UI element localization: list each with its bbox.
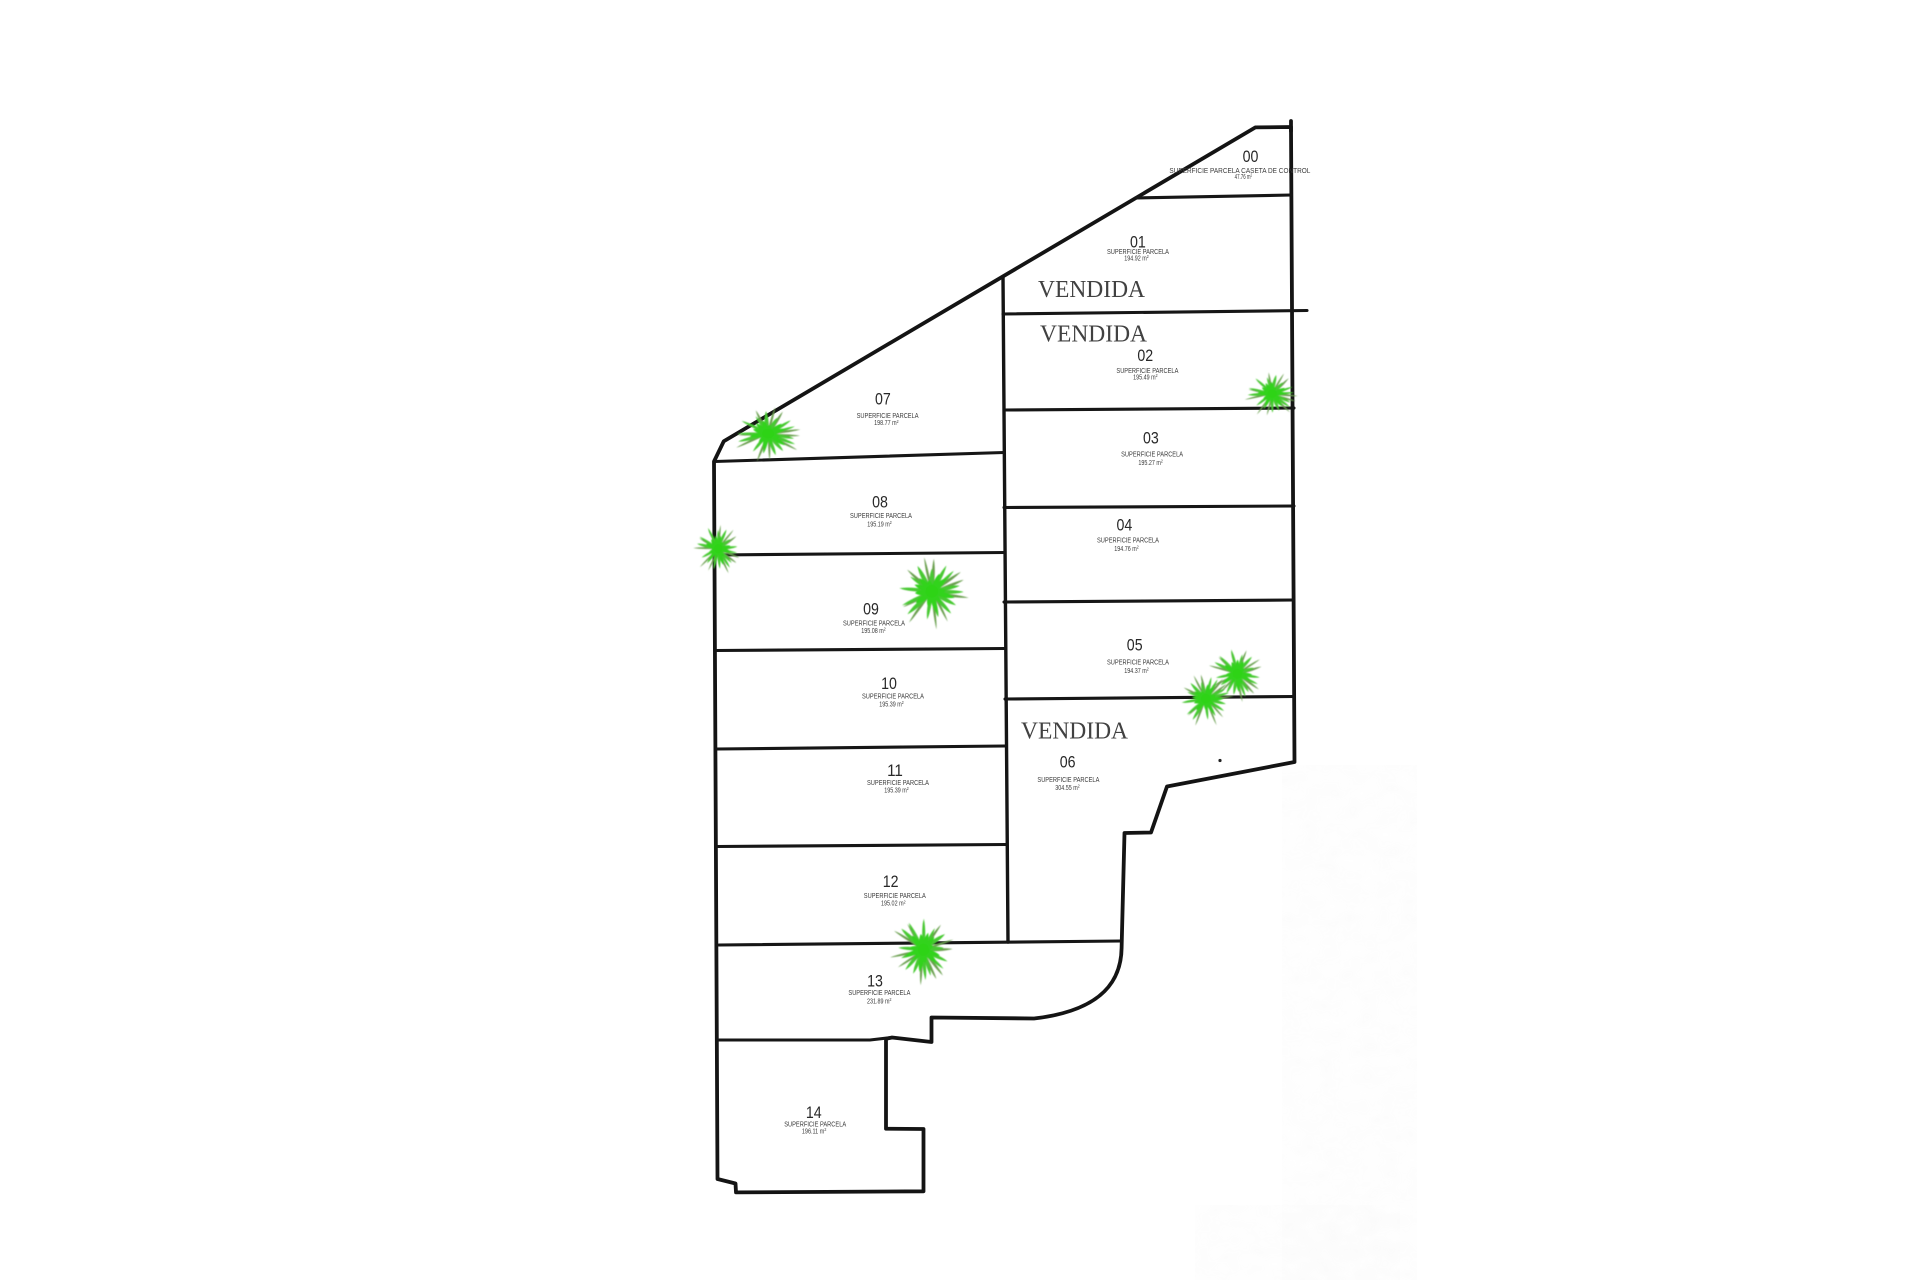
svg-text:09: 09 [863,600,879,619]
svg-text:02: 02 [1137,346,1153,365]
svg-text:SUPERFICIE PARCELA: SUPERFICIE PARCELA [1107,659,1169,666]
svg-text:08: 08 [872,493,888,512]
svg-text:11: 11 [887,761,903,780]
svg-text:14: 14 [806,1103,822,1122]
svg-text:195.39 m2: 195.39 m2 [884,786,909,794]
svg-text:194.37 m2: 194.37 m2 [1124,667,1149,675]
svg-text:06: 06 [1060,752,1076,771]
svg-text:SUPERFICIE PARCELA: SUPERFICIE PARCELA [843,620,905,627]
svg-text:SUPERFICIE PARCELA: SUPERFICIE PARCELA [1097,537,1159,544]
svg-text:SUPERFICIE PARCELA: SUPERFICIE PARCELA [1121,451,1183,458]
svg-text:SUPERFICIE PARCELA: SUPERFICIE PARCELA [857,413,919,420]
svg-text:VENDIDA: VENDIDA [1021,719,1129,745]
svg-text:SUPERFICIE PARCELA: SUPERFICIE PARCELA [850,513,912,520]
svg-text:10: 10 [881,674,897,693]
svg-text:231.89 m2: 231.89 m2 [867,997,892,1005]
svg-text:SUPERFICIE PARCELA: SUPERFICIE PARCELA [848,990,910,997]
svg-text:194.76 m2: 194.76 m2 [1114,545,1139,553]
svg-text:00: 00 [1243,147,1259,166]
svg-text:195.39 m2: 195.39 m2 [879,700,904,708]
svg-text:05: 05 [1127,636,1143,655]
svg-text:SUPERFICIE PARCELA: SUPERFICIE PARCELA [867,780,929,787]
svg-text:196.11 m2: 196.11 m2 [802,1127,827,1135]
svg-text:07: 07 [875,389,891,408]
svg-text:194.92 m2: 194.92 m2 [1124,254,1149,262]
svg-text:VENDIDA: VENDIDA [1040,322,1148,348]
svg-text:VENDIDA: VENDIDA [1038,277,1146,303]
svg-text:SUPERFICIE PARCELA: SUPERFICIE PARCELA [864,893,926,900]
svg-text:13: 13 [867,971,883,990]
svg-text:47.76 m2: 47.76 m2 [1235,173,1253,181]
svg-text:195.08 m2: 195.08 m2 [861,626,886,634]
svg-text:304.55 m2: 304.55 m2 [1055,783,1080,791]
svg-text:12: 12 [883,872,899,891]
svg-text:SUPERFICIE PARCELA: SUPERFICIE PARCELA [1037,777,1099,784]
svg-text:SUPERFICIE PARCELA: SUPERFICIE PARCELA [862,694,924,701]
svg-text:195.49 m2: 195.49 m2 [1133,373,1158,381]
svg-text:195.27 m2: 195.27 m2 [1138,459,1163,467]
svg-text:195.02 m2: 195.02 m2 [881,899,906,907]
svg-text:04: 04 [1117,515,1133,534]
svg-text:195.19 m2: 195.19 m2 [867,520,892,528]
svg-text:03: 03 [1143,428,1159,447]
svg-text:198.77 m2: 198.77 m2 [874,419,899,427]
